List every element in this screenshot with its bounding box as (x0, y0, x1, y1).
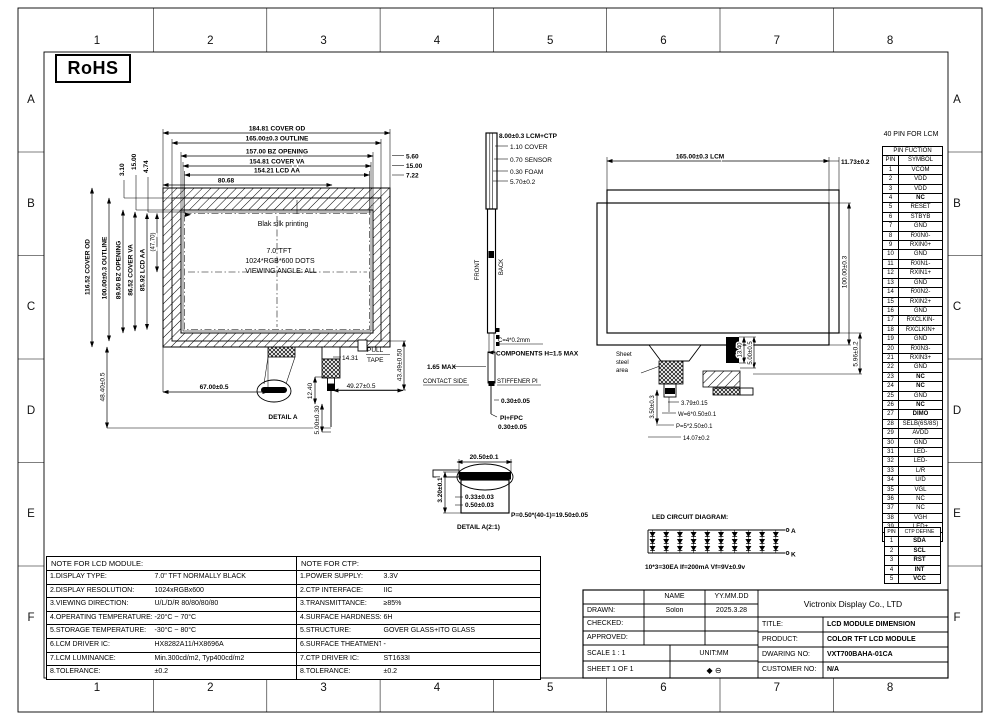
viewing-angle-label: VIEWING ANGLE: ALL (245, 268, 317, 275)
note-label: 7.LCM LUMINANCE: (47, 652, 152, 666)
pin-symbol: U/D (899, 476, 943, 485)
ctp-pin-row: 4INT (885, 565, 941, 574)
zone-row-left-B: B (27, 198, 35, 210)
lcm-pin-row: 28SELB(6S/8S) (883, 419, 943, 428)
pin-symbol: SDA (899, 537, 941, 546)
zone-col-bottom-8: 8 (887, 682, 893, 694)
pin-symbol: RESET (899, 203, 943, 212)
note-value: 1024xRGBx600 (152, 584, 297, 598)
pin-symbol: RXIN2+ (899, 297, 943, 306)
dim-5-96: 5.96±0.2 (853, 341, 860, 367)
lcm-pin-row: 7GND (883, 222, 943, 231)
pull-tape-label-2: TAPE (367, 357, 384, 364)
company-name: Victronix Display Co., LTD (758, 599, 948, 609)
dim-80-68: 80.68 (218, 178, 235, 185)
pin-number: 16 (883, 306, 899, 315)
pin-symbol: RXCLKIN- (899, 316, 943, 325)
dim-3-79: 3.79±0.15 (681, 401, 708, 407)
zone-col-bottom-5: 5 (547, 682, 553, 694)
detail-a-2to1: 20.50±0.1 3.20±0.1 0.33±0.03 0.50±0.03 P… (433, 454, 588, 531)
drawing-no-label: DWARING NO: (762, 651, 821, 658)
lcm-pin-row: 9RXIN0+ (883, 241, 943, 250)
rohs-logo: RoHS (55, 54, 131, 83)
note-row: 8.TOLERANCE:±0.2 (297, 666, 541, 680)
pin-symbol: L/R (899, 466, 943, 475)
lcm-pin-row: 23NC (883, 372, 943, 381)
dim-v-cover-va: 86.52 COVER VA (128, 244, 135, 296)
ctp-pin-row: 2SCL (885, 546, 941, 555)
led-symbol (746, 546, 751, 550)
customer-no-label: CUSTOMER NO: (762, 666, 821, 673)
lcm-pin-row: 21RXIN3+ (883, 353, 943, 362)
pin-number: 13 (883, 278, 899, 287)
pin-symbol: VGL (899, 485, 943, 494)
front-side-label: FRONT (475, 259, 481, 280)
ctp-pin-col-header: PIN (885, 528, 899, 537)
pin-number: 11 (883, 259, 899, 268)
pin-number: 36 (883, 495, 899, 504)
led-symbol (746, 532, 751, 536)
unit-label: UNIT:MM (670, 650, 758, 657)
dim-48-40: 48.40±0.5 (100, 372, 107, 401)
pin-symbol: GND (899, 438, 943, 447)
zone-row-right-C: C (953, 301, 961, 313)
dim-67-00: 67.00±0.5 (200, 384, 229, 391)
pin-number: 19 (883, 335, 899, 344)
pull-tape-label-1: PULL (367, 347, 384, 354)
pin-symbol: NC (899, 495, 943, 504)
pin-number: 21 (883, 353, 899, 362)
note-row: 2.DISPLAY RESOLUTION:1024xRGBx600 (47, 584, 297, 598)
note-label: 8.TOLERANCE: (297, 666, 381, 680)
led-symbol (760, 546, 765, 550)
pin-number: 34 (883, 476, 899, 485)
zone-row-right-B: B (953, 198, 961, 210)
dim-20-50: 20.50±0.1 (470, 454, 499, 461)
ctp-define-col-header: CTP DEFINE (899, 528, 941, 537)
pin-number: 9 (883, 241, 899, 250)
lcm-pin-row: 16GND (883, 306, 943, 315)
note-row: 7.CTP DRIVER IC:ST1633I (297, 652, 541, 666)
dim-w: W=6*0.50±0.1 (678, 412, 717, 418)
zone-col-bottom-4: 4 (434, 682, 440, 694)
silk-print-label: Blak silk printing (258, 221, 309, 228)
led-symbol (705, 546, 710, 550)
zone-col-top-6: 6 (660, 35, 666, 47)
sheet-label: SHEET 1 OF 1 (587, 666, 667, 673)
pin-symbol: NC (899, 382, 943, 391)
back-view: 165.00±0.3 LCM 11.73±0.2 100.00±0.3 5.96… (597, 154, 870, 443)
pin-number: 14 (883, 288, 899, 297)
pin-symbol: LED- (899, 448, 943, 457)
zone-col-top-3: 3 (320, 35, 326, 47)
product-value: COLOR TFT LCD MODULE (827, 636, 946, 643)
drawn-name: Solon (644, 607, 705, 614)
led-symbol (678, 546, 683, 550)
lcm-pin-row: 15RXIN2+ (883, 297, 943, 306)
dim-0-33: 0.33±0.03 (465, 494, 494, 501)
note-row: 3.VIEWING DIRECTION:U/L/D/R 80/80/80/80 (47, 598, 297, 612)
pin-symbol: RXIN1- (899, 259, 943, 268)
title-label: TITLE: (762, 621, 821, 628)
pin-number: 28 (883, 419, 899, 428)
note-label: 4.OPERATING TEMPERATURE: (47, 611, 152, 625)
lcm-pin-table-header: PIN FUCTION (883, 147, 943, 156)
pin-symbol: GND (899, 335, 943, 344)
dim-cover-va: 154.81 COVER VA (249, 159, 304, 166)
note-row: 3.TRANSMITTANCE:≥85% (297, 598, 541, 612)
led-symbol (719, 532, 724, 536)
pin-symbol: VDD (899, 184, 943, 193)
pin-number: 22 (883, 363, 899, 372)
zone-col-top-8: 8 (887, 35, 893, 47)
detail-a2-title: DETAIL A(2:1) (457, 524, 500, 531)
note-label: 5.STRUCTURE: (297, 625, 381, 639)
lcm-pin-row: 22GND (883, 363, 943, 372)
lcm-pin-row: 20RXIN3- (883, 344, 943, 353)
led-symbol (664, 546, 669, 550)
ctp-pin-row: 1SDA (885, 537, 941, 546)
approved-label: APPROVED: (587, 634, 642, 641)
lcm-pin-row: 26NC (883, 400, 943, 409)
dim-outline: 165.00±0.3 OUTLINE (246, 136, 309, 143)
dim-13-40: 13.40 (738, 342, 744, 358)
note-row: 6.SURFACE THEATMENT:- (297, 638, 541, 652)
lcm-pin-row: 35VGL (883, 485, 943, 494)
led-symbol (705, 532, 710, 536)
pin-number: 23 (883, 372, 899, 381)
pin-number: 25 (883, 391, 899, 400)
pin-symbol: NC (899, 194, 943, 203)
pin-number: 5 (883, 203, 899, 212)
back-side-label: BACK (499, 259, 505, 275)
zone-col-top-2: 2 (207, 35, 213, 47)
note-value: - (381, 638, 541, 652)
components-label: COMPONENTS H=1.5 MAX (496, 351, 579, 358)
zone-col-bottom-1: 1 (94, 682, 100, 694)
date-header: YY.MM.DD (705, 593, 758, 600)
zone-row-left-D: D (27, 405, 35, 417)
pin-symbol: VCC (899, 575, 941, 584)
lcm-pin-table-caption: 40 PIN FOR LCM (870, 131, 952, 138)
note-value: Min.300cd/m2, Typ400cd/m2 (152, 652, 297, 666)
zone-col-bottom-2: 2 (207, 682, 213, 694)
product-label: PRODUCT: (762, 636, 821, 643)
pin-number: 27 (883, 410, 899, 419)
dim-14-31: 14.31 (342, 355, 359, 362)
led-symbol (691, 532, 696, 536)
lcm-pin-row: 37NC (883, 504, 943, 513)
led-symbol (678, 539, 683, 543)
led-symbol (773, 539, 778, 543)
pin-symbol: STBYB (899, 212, 943, 221)
customer-no-value: N/A (827, 666, 946, 673)
pin-symbol: NC (899, 372, 943, 381)
led-symbol (664, 532, 669, 536)
pin-number: 35 (883, 485, 899, 494)
dim-cover-thk: 1.10 COVER (510, 144, 548, 151)
ctp-pin-row: 5VCC (885, 575, 941, 584)
pin-number: 2 (883, 175, 899, 184)
ctp-notes-title: NOTE FOR CTP: (297, 557, 541, 571)
lcm-pin-row: 31LED- (883, 448, 943, 457)
zone-row-left-F: F (27, 612, 34, 624)
led-symbol (719, 539, 724, 543)
dim-15-00-l: 15.00 (131, 153, 138, 170)
led-diagram-title: LED CIRCUIT DIAGRAM: (652, 514, 728, 521)
lcd-notes-table: NOTE FOR LCD MODULE: 1.DISPLAY TYPE:7.0"… (46, 556, 297, 680)
led-symbol (705, 539, 710, 543)
pin-symbol: RXIN3+ (899, 353, 943, 362)
contact-side-label: CONTACT SIDE (423, 379, 467, 385)
pin-symbol: GND (899, 250, 943, 259)
zone-col-top-7: 7 (774, 35, 780, 47)
lcd-notes-title: NOTE FOR LCD MODULE: (47, 557, 297, 571)
dim-v-outline: 100.00±0.3 OUTLINE (102, 236, 109, 299)
title-value: LCD MODULE DIMENSION (827, 621, 946, 628)
lcm-pin-row: 8RXIN0- (883, 231, 943, 240)
note-value: 7.0" TFT NORMALLY BLACK (152, 571, 297, 585)
dim-v-bz: 89.50 BZ OPENING (116, 241, 123, 300)
pin-symbol: GND (899, 306, 943, 315)
pin-number: 17 (883, 316, 899, 325)
dim-3-10: 3.10 (119, 163, 126, 176)
side-view: 8.00±0.3 LCM+CTP 1.10 COVER 0.70 SENSOR … (423, 133, 579, 431)
note-label: 8.TOLERANCE: (47, 666, 152, 680)
drawn-date: 2025.3.28 (705, 607, 758, 614)
pin-symbol: GND (899, 278, 943, 287)
lcm-pin-row: 12RXIN1+ (883, 269, 943, 278)
pin-symbol: VCOM (899, 165, 943, 174)
lcm-pin-row: 1VCOM (883, 165, 943, 174)
lcm-pin-col-header: PIN (883, 156, 899, 165)
component-spec-label: C=4*0.2mm (498, 338, 530, 344)
dim-14-07: 14.07±0.2 (683, 436, 710, 442)
led-symbol (773, 532, 778, 536)
pin-number: 10 (883, 250, 899, 259)
dim-0-30-a: 0.30±0.05 (501, 398, 530, 405)
lcm-pin-row: 38VGH (883, 513, 943, 522)
note-label: 1.DISPLAY TYPE: (47, 571, 152, 585)
pin-number: 4 (883, 194, 899, 203)
note-value: 3.3V (381, 571, 541, 585)
lcm-pin-row: 29AVDD (883, 429, 943, 438)
zone-row-left-E: E (27, 508, 35, 520)
note-value: ±0.2 (152, 666, 297, 680)
pin-number: 1 (883, 165, 899, 174)
pin-symbol: GND (899, 391, 943, 400)
pin-symbol: VGH (899, 513, 943, 522)
led-symbol (732, 546, 737, 550)
led-symbol (650, 546, 655, 550)
pin-symbol: RXCLKIN+ (899, 325, 943, 334)
ctp-notes-table: NOTE FOR CTP: 1.POWER SUPPLY:3.3V2.CTP I… (296, 556, 541, 680)
name-header: NAME (644, 593, 705, 600)
note-value: HX8282A11/HX8696A (152, 638, 297, 652)
pin-number: 12 (883, 269, 899, 278)
detail-a-label: DETAIL A (268, 414, 297, 421)
dim-pitch: P=0.50*(40-1)=19.50±0.05 (511, 512, 588, 519)
lcm-pin-row: 14RXIN2- (883, 288, 943, 297)
note-row: 1.POWER SUPPLY:3.3V (297, 571, 541, 585)
lcm-pin-row: 25GND (883, 391, 943, 400)
note-row: 7.LCM LUMINANCE:Min.300cd/m2, Typ400cd/m… (47, 652, 297, 666)
screen-resolution-label: 1024*RGB*600 DOTS (245, 258, 315, 265)
dim-5-00-5: 5.00±0.5 (748, 341, 754, 365)
dim-lcd-aa: 154.21 LCD AA (254, 168, 300, 175)
note-value: GOVER GLASS+ITO GLASS (381, 625, 541, 639)
pin-number: 38 (883, 513, 899, 522)
pin-number: 30 (883, 438, 899, 447)
zone-col-top-4: 4 (434, 35, 440, 47)
led-symbol (678, 532, 683, 536)
note-label: 2.CTP INTERFACE: (297, 584, 381, 598)
dim-foam-thk: 0.30 FOAM (510, 169, 543, 176)
lcm-pin-row: 6STBYB (883, 212, 943, 221)
note-row: 1.DISPLAY TYPE:7.0" TFT NORMALLY BLACK (47, 571, 297, 585)
led-spec-note: 10*3=30EA If=200mA Vf=9V±0.9v (645, 564, 745, 571)
pin-symbol: RXIN2- (899, 288, 943, 297)
dim-5-70: 5.70±0.2 (510, 179, 536, 186)
dim-43-49: 43.49±0.50 (397, 348, 404, 381)
note-row: 8.TOLERANCE:±0.2 (47, 666, 297, 680)
lcm-pin-row: 30GND (883, 438, 943, 447)
led-anode-label: A (791, 528, 796, 535)
sheet-steel-label-1: Sheet (616, 352, 632, 358)
note-row: 4.OPERATING TEMPERATURE:-20°C ~ 70°C (47, 611, 297, 625)
stiffener-label: STIFFENER PI (497, 379, 538, 385)
note-label: 3.VIEWING DIRECTION: (47, 598, 152, 612)
led-symbol (650, 532, 655, 536)
lcm-pin-row: 11RXIN1- (883, 259, 943, 268)
note-label: 3.TRANSMITTANCE: (297, 598, 381, 612)
dim-47-70: (47.70) (151, 232, 157, 251)
led-circuit-diagram: LED CIRCUIT DIAGRAM: A K 10*3=30EA If=20… (645, 514, 796, 571)
pin-symbol: RST (899, 556, 941, 565)
ctp-pin-row: 3RST (885, 556, 941, 565)
note-row: 4.SURFACE HARDNESS:6H (297, 611, 541, 625)
led-symbol (719, 546, 724, 550)
dim-v-cover-od: 116.52 COVER OD (85, 239, 92, 295)
zone-row-right-F: F (953, 612, 960, 624)
led-symbol (691, 546, 696, 550)
sheet-steel-label-3: area (616, 368, 629, 374)
lcm-pin-row: 32LED- (883, 457, 943, 466)
dim-3-50: 3.50±0.3 (650, 395, 656, 419)
pin-number: 33 (883, 466, 899, 475)
note-row: 5.STRUCTURE:GOVER GLASS+ITO GLASS (297, 625, 541, 639)
pin-symbol: RXIN0- (899, 231, 943, 240)
led-symbol (691, 539, 696, 543)
zone-row-left-A: A (27, 94, 35, 106)
lcm-pin-row: 5RESET (883, 203, 943, 212)
screen-type-label: 7.0"TFT (266, 248, 292, 255)
dim-1-65-max: 1.65 MAX (427, 364, 457, 371)
note-label: 2.DISPLAY RESOLUTION: (47, 584, 152, 598)
pin-number: 20 (883, 344, 899, 353)
dim-v-lcd-aa: 85.92 LCD AA (140, 249, 147, 292)
led-symbol (760, 532, 765, 536)
dim-bz-opening: 157.00 BZ OPENING (246, 149, 308, 156)
led-symbol (760, 539, 765, 543)
dim-165-lcm: 165.00±0.3 LCM (676, 154, 724, 161)
led-symbol (732, 539, 737, 543)
pin-number: 32 (883, 457, 899, 466)
dim-0-30-b: 0.30±0.05 (498, 424, 527, 431)
dim-0-50: 0.50±0.03 (465, 502, 494, 509)
zone-col-top-5: 5 (547, 35, 553, 47)
zone-row-right-E: E (953, 508, 961, 520)
note-value: 6H (381, 611, 541, 625)
led-cathode-label: K (791, 552, 796, 559)
pi-fpc-label: PI+FPC (500, 415, 523, 422)
pin-number: 8 (883, 231, 899, 240)
dim-15-00-r: 15.00 (406, 163, 423, 170)
pin-symbol: DIMO (899, 410, 943, 419)
dim-100-00: 100.00±0.3 (842, 255, 849, 288)
pin-number: 3 (885, 556, 899, 565)
lcm-pin-row: 10GND (883, 250, 943, 259)
note-value: ST1633I (381, 652, 541, 666)
pin-number: 2 (885, 546, 899, 555)
lcm-symbol-col-header: SYMBOL (899, 156, 943, 165)
lcm-pin-row: 33L/R (883, 466, 943, 475)
led-symbol (732, 532, 737, 536)
note-value: U/L/D/R 80/80/80/80 (152, 598, 297, 612)
front-view: Blak silk printing 7.0"TFT 1024*RGB*600 … (85, 126, 423, 435)
led-symbol (773, 546, 778, 550)
note-label: 6.SURFACE THEATMENT: (297, 638, 381, 652)
pin-symbol: AVDD (899, 429, 943, 438)
pin-symbol: NC (899, 400, 943, 409)
dim-sensor-thk: 0.70 SENSOR (510, 157, 552, 164)
sheet-steel-label-2: steel (616, 360, 629, 366)
lcm-pin-row: 19GND (883, 335, 943, 344)
note-row: 6.LCM DRIVER IC:HX8282A11/HX8696A (47, 638, 297, 652)
pin-number: 37 (883, 504, 899, 513)
led-symbol (650, 539, 655, 543)
note-value: IIC (381, 584, 541, 598)
note-label: 4.SURFACE HARDNESS: (297, 611, 381, 625)
note-value: ≥85% (381, 598, 541, 612)
lcm-pin-row: 27DIMO (883, 410, 943, 419)
pin-number: 29 (883, 429, 899, 438)
note-value: -20°C ~ 70°C (152, 611, 297, 625)
pin-symbol: VDD (899, 175, 943, 184)
led-symbol (746, 539, 751, 543)
pin-number: 7 (883, 222, 899, 231)
drawing-no-value: VXT700BAHA-01CA (827, 651, 946, 658)
dim-p: P=5*2.50±0.1 (676, 424, 713, 430)
lcm-pin-row: 4NC (883, 194, 943, 203)
scale-label: SCALE 1 : 1 (587, 650, 667, 657)
zone-col-bottom-7: 7 (774, 682, 780, 694)
lcm-pin-row: 13GND (883, 278, 943, 287)
pin-symbol: NC (899, 504, 943, 513)
pin-number: 4 (885, 565, 899, 574)
note-value: ±0.2 (381, 666, 541, 680)
lcm-pin-row: 34U/D (883, 476, 943, 485)
note-row: 2.CTP INTERFACE:IIC (297, 584, 541, 598)
lcm-pin-row: 36NC (883, 495, 943, 504)
pin-symbol: RXIN0+ (899, 241, 943, 250)
dim-5-00-30: 5.00±0.30 (314, 405, 321, 434)
dim-lcm-ctp-total: 8.00±0.3 LCM+CTP (499, 133, 558, 140)
dim-5-60: 5.60 (406, 154, 419, 161)
led-symbol-grid (650, 530, 778, 553)
zone-row-right-A: A (953, 94, 961, 106)
pin-number: 15 (883, 297, 899, 306)
